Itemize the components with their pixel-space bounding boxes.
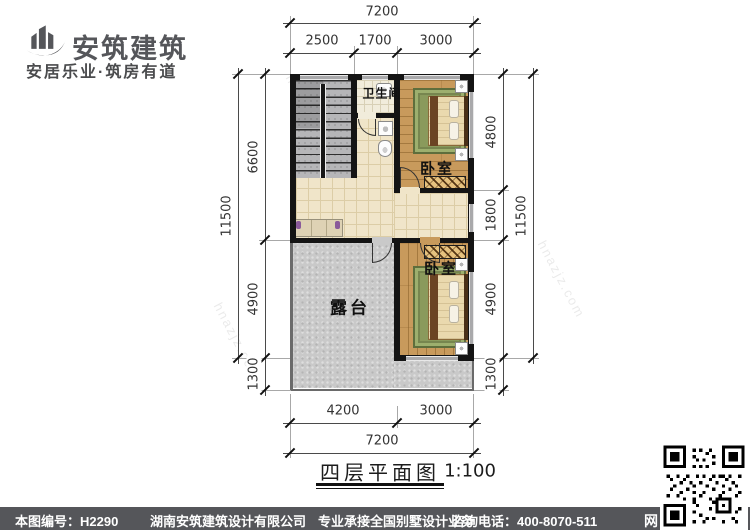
bedroom-top-pillow bbox=[449, 100, 459, 118]
dim-line-bottom-segs bbox=[283, 423, 481, 424]
staircase-upper-flight-shade bbox=[296, 80, 323, 128]
bedroom-top-pillow bbox=[449, 122, 459, 140]
wall-outer-left bbox=[290, 74, 296, 243]
plan-scale: 1:100 bbox=[444, 461, 496, 482]
sheet-number-value: H2290 bbox=[80, 514, 118, 529]
door-leaf-bedroom-top bbox=[400, 167, 401, 188]
wall-stair-bathroom bbox=[351, 74, 357, 178]
staircase-handrail bbox=[320, 84, 326, 178]
watermark-site: hnazjz.com bbox=[535, 238, 589, 321]
dim-top-seg: 1700 bbox=[356, 34, 393, 49]
ext-line bbox=[290, 16, 291, 74]
window-bedroom-bottom bbox=[406, 356, 458, 361]
door-opening-bathroom bbox=[358, 112, 376, 119]
window-stair-top bbox=[300, 75, 348, 80]
bedroom-bottom-pillow bbox=[449, 281, 459, 299]
ext-line bbox=[397, 406, 398, 428]
room-label-terrace: 露台 bbox=[330, 294, 370, 319]
dim-line-left-total bbox=[238, 68, 239, 364]
footer-company: 湖南安筑建筑设计有限公司 bbox=[150, 511, 306, 530]
window-hall-right bbox=[469, 204, 474, 232]
window-bedroom-bottom-right bbox=[469, 272, 474, 344]
dim-left-seg: 1300 bbox=[247, 355, 262, 392]
dim-left-total: 11500 bbox=[220, 193, 235, 238]
dim-bottom-seg: 4200 bbox=[324, 404, 361, 419]
dim-line-left-segs bbox=[265, 68, 266, 396]
brand-logo-icon bbox=[22, 20, 68, 58]
dim-left-seg: 6600 bbox=[247, 138, 262, 175]
toilet bbox=[378, 140, 392, 157]
drawing-sheet: 安筑建筑 安居乐业·筑房有道 hnazjz.com hnazjz.com hna… bbox=[0, 0, 750, 530]
title-underline-thick bbox=[316, 483, 444, 486]
nightstand bbox=[455, 148, 468, 161]
dim-right-seg: 4800 bbox=[485, 113, 500, 150]
bedroom-bottom-pillow bbox=[449, 305, 459, 323]
dim-line-top-segs bbox=[283, 53, 481, 54]
room-label-bedroom-top: 卧室 bbox=[420, 158, 454, 179]
title-underline-thin bbox=[316, 488, 444, 489]
dim-right-total: 11500 bbox=[515, 193, 530, 238]
dim-left-seg: 4900 bbox=[247, 280, 262, 317]
door-opening-bedroom-top bbox=[400, 187, 420, 194]
sofa-cushion bbox=[296, 221, 301, 229]
dim-line-right-segs bbox=[503, 68, 504, 396]
window-bathroom-top bbox=[362, 75, 388, 80]
dim-top-seg: 2500 bbox=[303, 34, 340, 49]
terrace-railing-right bbox=[472, 361, 475, 391]
qr-code bbox=[658, 442, 750, 530]
dim-bottom-seg: 3000 bbox=[417, 404, 454, 419]
dim-top-seg: 3000 bbox=[417, 34, 454, 49]
nightstand bbox=[455, 80, 468, 93]
nightstand bbox=[455, 342, 468, 355]
plan-title: 四层平面图 bbox=[320, 457, 440, 486]
dim-top-total: 7200 bbox=[363, 5, 400, 20]
bedroom-bottom-blanket bbox=[430, 274, 438, 340]
terrace-railing-bottom bbox=[290, 389, 474, 392]
footer-phone: 咨询电话：400-8070-511 bbox=[452, 511, 597, 530]
terrace-railing-left bbox=[290, 243, 293, 391]
sheet-number: 本图编号：H2290 bbox=[15, 511, 118, 530]
dim-bottom-total: 7200 bbox=[363, 434, 400, 449]
sheet-number-label: 本图编号： bbox=[15, 514, 80, 529]
footer-service: 专业承接全国别墅设计业务 bbox=[318, 511, 474, 530]
room-label-bedroom-bottom: 卧室 bbox=[424, 258, 458, 279]
hall-strip-floor bbox=[394, 193, 468, 238]
dim-line-bottom-total bbox=[283, 453, 481, 454]
sofa-cushion bbox=[335, 221, 340, 229]
terrace-floor-strip bbox=[394, 361, 472, 388]
dim-right-seg: 1300 bbox=[485, 355, 500, 392]
window-bedroom-top bbox=[404, 75, 460, 80]
room-label-bathroom: 卫生间 bbox=[362, 85, 401, 102]
ext-line bbox=[290, 394, 291, 458]
dim-right-seg: 4900 bbox=[485, 280, 500, 317]
footer-web-badge: 网 bbox=[644, 511, 658, 530]
ext-line bbox=[473, 394, 474, 458]
washing-machine bbox=[378, 121, 393, 136]
dim-line-top-total bbox=[283, 23, 481, 24]
dim-right-seg: 1800 bbox=[485, 196, 500, 233]
brand-tagline: 安居乐业·筑房有道 bbox=[26, 58, 177, 82]
door-leaf-bathroom bbox=[375, 119, 376, 136]
window-bedroom-top-right bbox=[469, 92, 474, 158]
door-leaf-terrace bbox=[372, 243, 373, 263]
wall-bedroom-bottom-left bbox=[394, 238, 400, 361]
dim-line-right-total bbox=[533, 68, 534, 364]
bedroom-top-blanket bbox=[430, 96, 438, 146]
